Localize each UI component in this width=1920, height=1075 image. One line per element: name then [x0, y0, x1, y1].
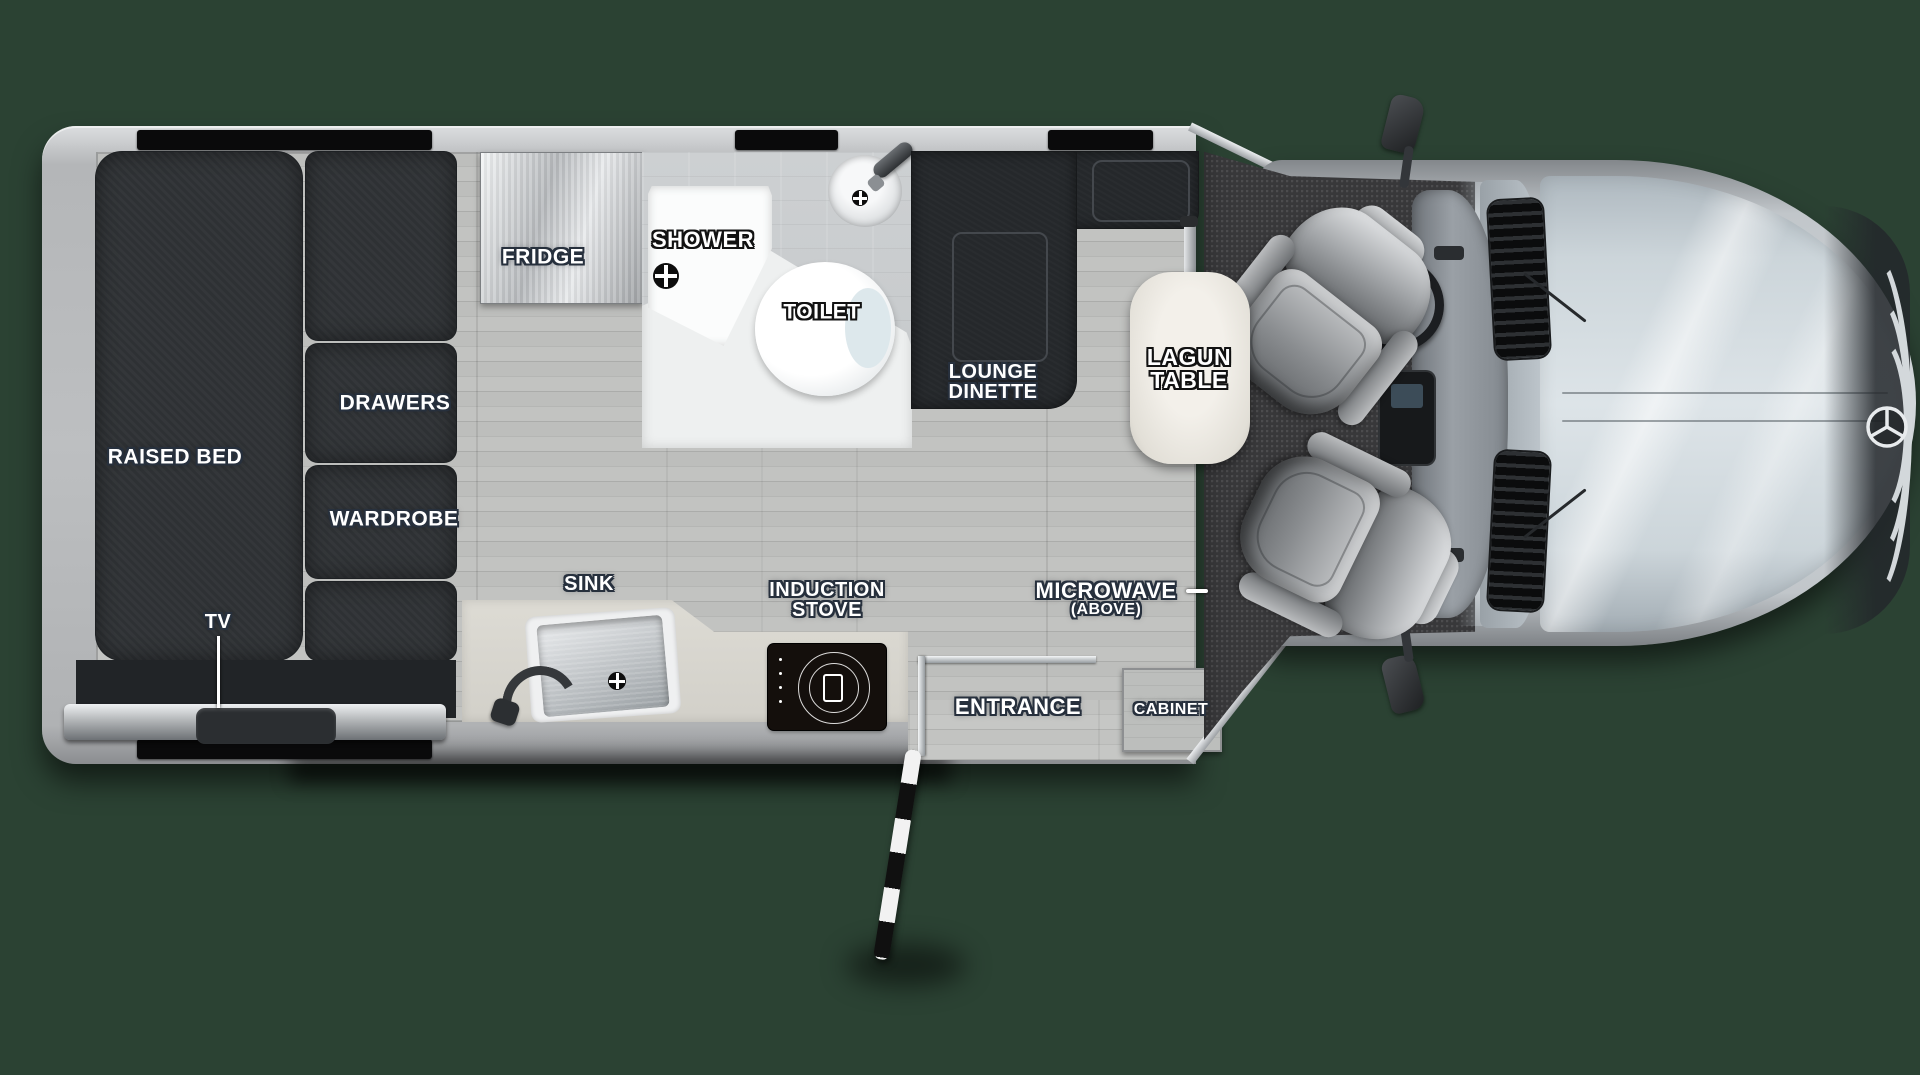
coach-shadow	[290, 756, 950, 782]
label-lagun-line2: TABLE	[1150, 367, 1227, 393]
label-induction-stove: INDUCTION STOVE	[769, 580, 885, 620]
label-lounge-line2: DINETTE	[948, 381, 1037, 403]
label-fridge: FRIDGE	[502, 247, 584, 268]
label-wardrobe: WARDROBE	[330, 509, 459, 530]
stove-button-dot	[779, 672, 782, 675]
fridge	[480, 152, 644, 304]
step-shadow	[846, 944, 966, 986]
label-shower: SHOWER	[652, 229, 754, 251]
label-tv: TV	[205, 612, 232, 632]
dash-vent-icon	[1434, 246, 1464, 260]
entry-step-frame	[918, 656, 1096, 663]
label-lounge-dinette: LOUNGE DINETTE	[948, 362, 1037, 402]
label-toilet: TOILET	[783, 302, 860, 323]
stove-button-dot	[779, 700, 782, 703]
console-screen	[1391, 384, 1423, 408]
hood-vent-icon	[1488, 199, 1550, 360]
entry-step-frame	[918, 656, 925, 756]
hood-vent-icon	[1488, 451, 1550, 612]
label-raised-bed: RAISED BED	[108, 447, 243, 468]
label-lagun-table: LAGUN TABLE	[1147, 346, 1231, 392]
label-induction-line2: STOVE	[792, 599, 862, 621]
stove-display-icon	[823, 674, 843, 702]
rv-floor-plan: RAISED BED DRAWERS WARDROBE TV FRIDGE SH…	[0, 0, 1920, 1075]
tv-screen	[196, 708, 336, 744]
label-microwave-line1: MICROWAVE	[1036, 578, 1177, 603]
window-bar	[1048, 130, 1153, 150]
side-mirror	[1380, 93, 1427, 156]
window-bar	[735, 130, 838, 150]
dinette-cushion	[952, 232, 1048, 362]
kitchen-drain-icon	[608, 672, 626, 690]
tv-leader-line	[217, 636, 220, 708]
stove-button-dot	[779, 658, 782, 661]
dinette-cushion	[1092, 160, 1190, 222]
sink-drain-icon	[852, 190, 868, 206]
label-entrance: ENTRANCE	[955, 696, 1081, 718]
mercedes-star-icon	[1864, 404, 1910, 450]
table-arm-mount	[1180, 216, 1198, 227]
label-microwave: MICROWAVE (ABOVE)	[1036, 580, 1177, 618]
side-mirror	[1380, 653, 1427, 716]
bed-side-panel	[306, 152, 456, 340]
table-arm	[1184, 222, 1196, 278]
label-induction-line1: INDUCTION	[769, 579, 885, 601]
label-sink: SINK	[564, 574, 614, 594]
label-cabinet: CABINET	[1134, 702, 1209, 718]
shower-drain-icon	[653, 263, 679, 289]
bed-side-panel	[306, 582, 456, 660]
label-microwave-line2: (ABOVE)	[1036, 602, 1177, 618]
window-bar	[137, 130, 432, 150]
microwave-leader-line	[1186, 589, 1208, 593]
stove-button-dot	[779, 686, 782, 689]
label-lounge-line1: LOUNGE	[949, 361, 1038, 383]
raised-bed-area	[96, 152, 302, 660]
label-drawers: DRAWERS	[340, 393, 451, 414]
